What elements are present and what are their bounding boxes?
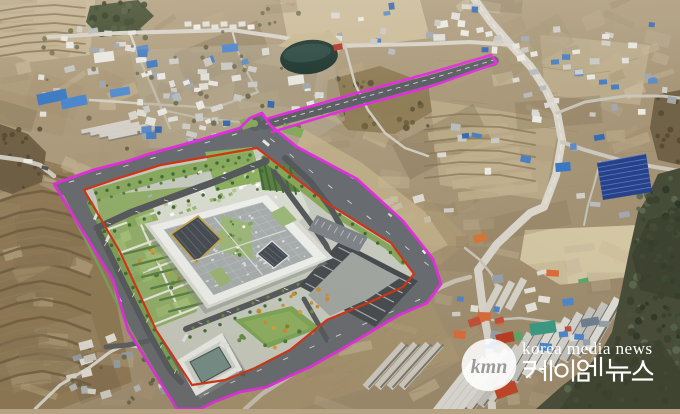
svg-text:kmn: kmn	[471, 356, 508, 378]
svg-text:korea media news: korea media news	[522, 339, 652, 358]
